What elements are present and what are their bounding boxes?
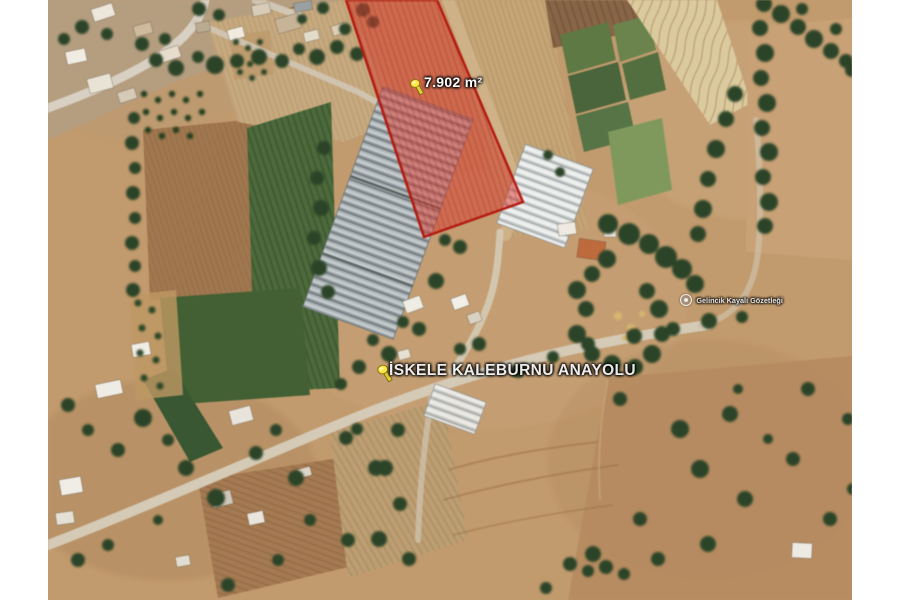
road-name-label: İSKELE KALEBURNU ANAYOLU bbox=[389, 362, 636, 380]
place-watermark: Gelincik Kayalı Gözetleği bbox=[680, 294, 784, 306]
left-margin bbox=[0, 0, 48, 600]
right-margin bbox=[852, 0, 900, 600]
google-earth-screenshot: 7.902 m² İSKELE KALEBURNU ANAYOLU Gelinc… bbox=[0, 0, 900, 600]
place-marker-icon[interactable] bbox=[680, 294, 692, 306]
parcel-area-label: 7.902 m² bbox=[424, 74, 482, 90]
satellite-map[interactable]: 7.902 m² İSKELE KALEBURNU ANAYOLU Gelinc… bbox=[48, 0, 852, 600]
place-watermark-label: Gelincik Kayalı Gözetleği bbox=[696, 296, 783, 305]
